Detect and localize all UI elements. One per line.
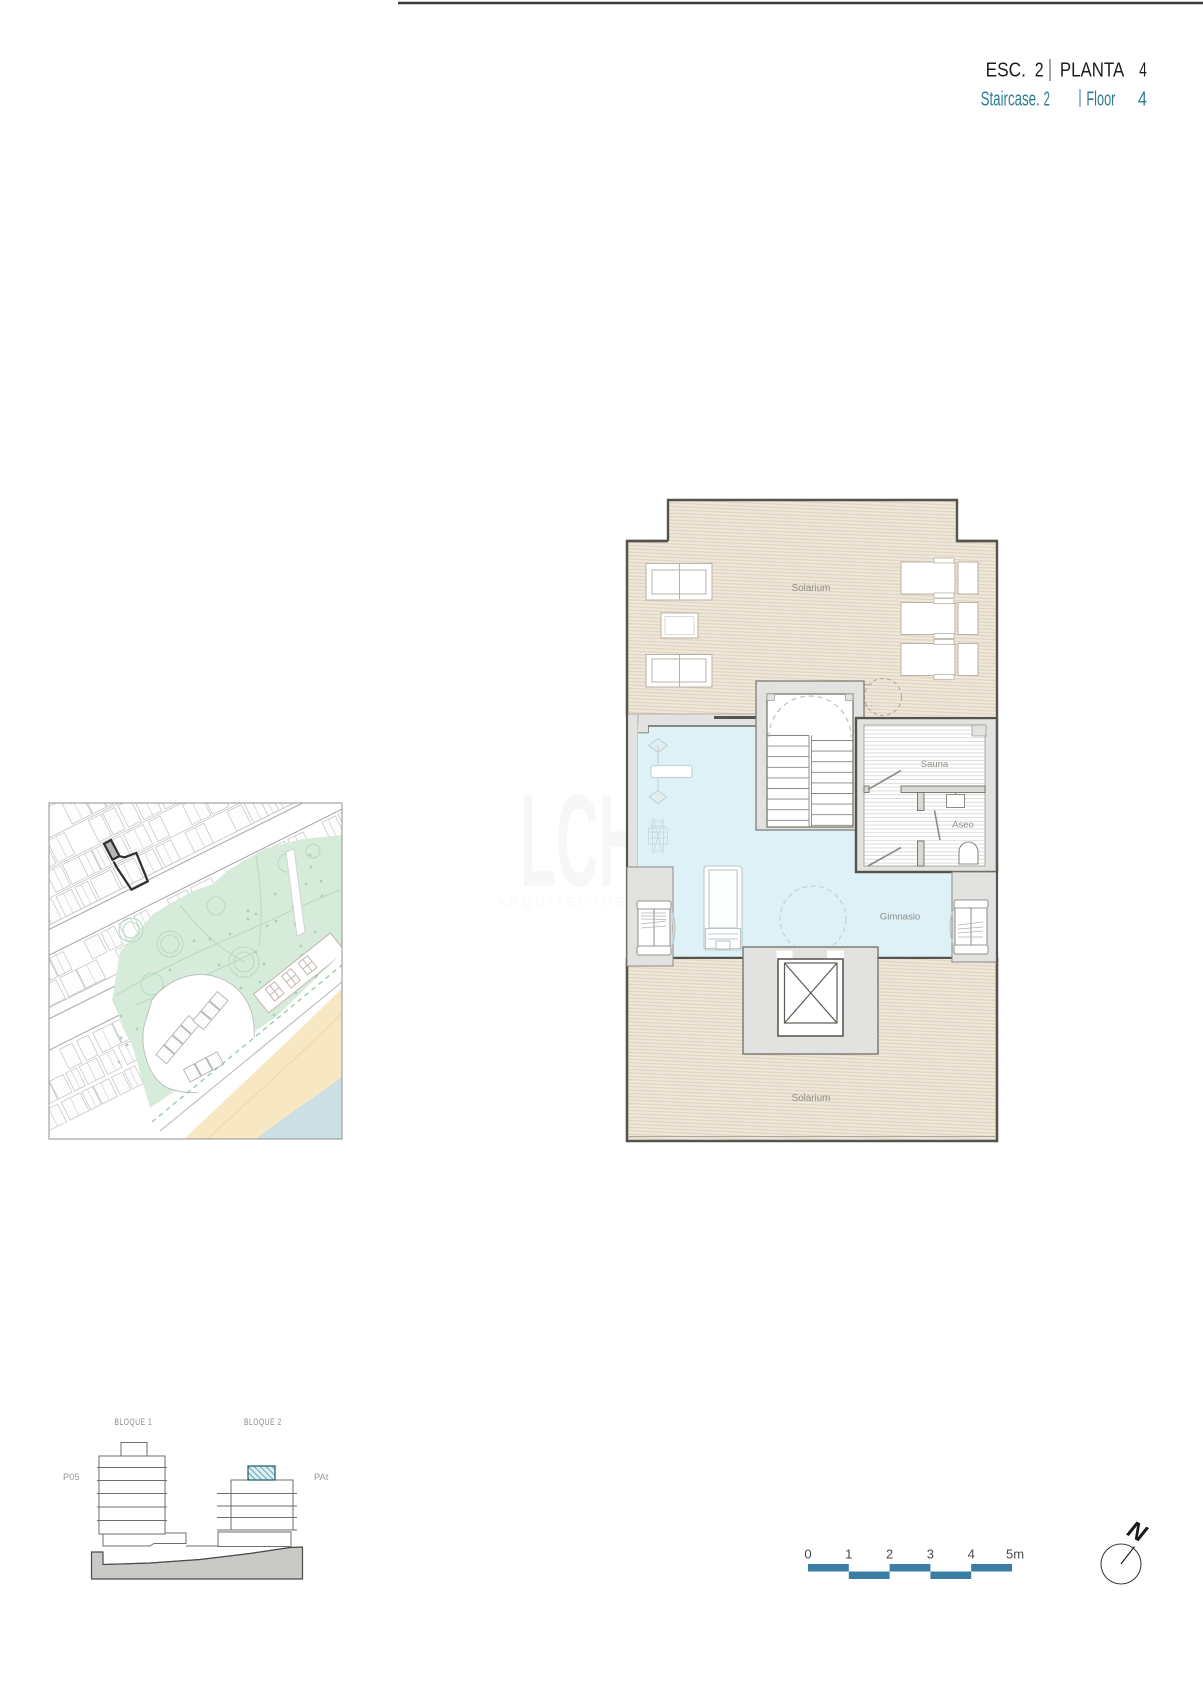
svg-text:ESC.: ESC. [986, 59, 1026, 82]
svg-text:Staircase.: Staircase. [981, 88, 1040, 110]
svg-text:Floor: Floor [1086, 88, 1115, 110]
svg-text:N: N [1123, 1516, 1152, 1548]
svg-text:5m: 5m [1006, 1547, 1024, 1562]
svg-text:1: 1 [845, 1547, 852, 1562]
svg-text:PLANTA: PLANTA [1060, 59, 1125, 82]
svg-text:4: 4 [1139, 59, 1147, 82]
svg-text:Solarium: Solarium [792, 583, 831, 594]
svg-text:Aseo: Aseo [952, 820, 974, 831]
svg-text:PAt: PAt [314, 1472, 329, 1482]
svg-text:2: 2 [1044, 88, 1050, 110]
svg-text:4: 4 [968, 1547, 975, 1562]
svg-text:Solarium: Solarium [792, 1093, 831, 1104]
svg-text:BLOQUE 2: BLOQUE 2 [244, 1417, 282, 1427]
svg-text:Sauna: Sauna [921, 759, 949, 770]
svg-text:0: 0 [804, 1547, 811, 1562]
svg-text:P05: P05 [63, 1472, 80, 1482]
svg-text:BLOQUE 1: BLOQUE 1 [115, 1417, 153, 1427]
svg-text:4: 4 [1138, 88, 1147, 110]
svg-text:2: 2 [886, 1547, 893, 1562]
svg-text:LCH: LCH [520, 766, 641, 915]
svg-text:3: 3 [927, 1547, 934, 1562]
svg-text:2: 2 [1035, 59, 1044, 82]
svg-text:Gimnasio: Gimnasio [880, 912, 921, 923]
